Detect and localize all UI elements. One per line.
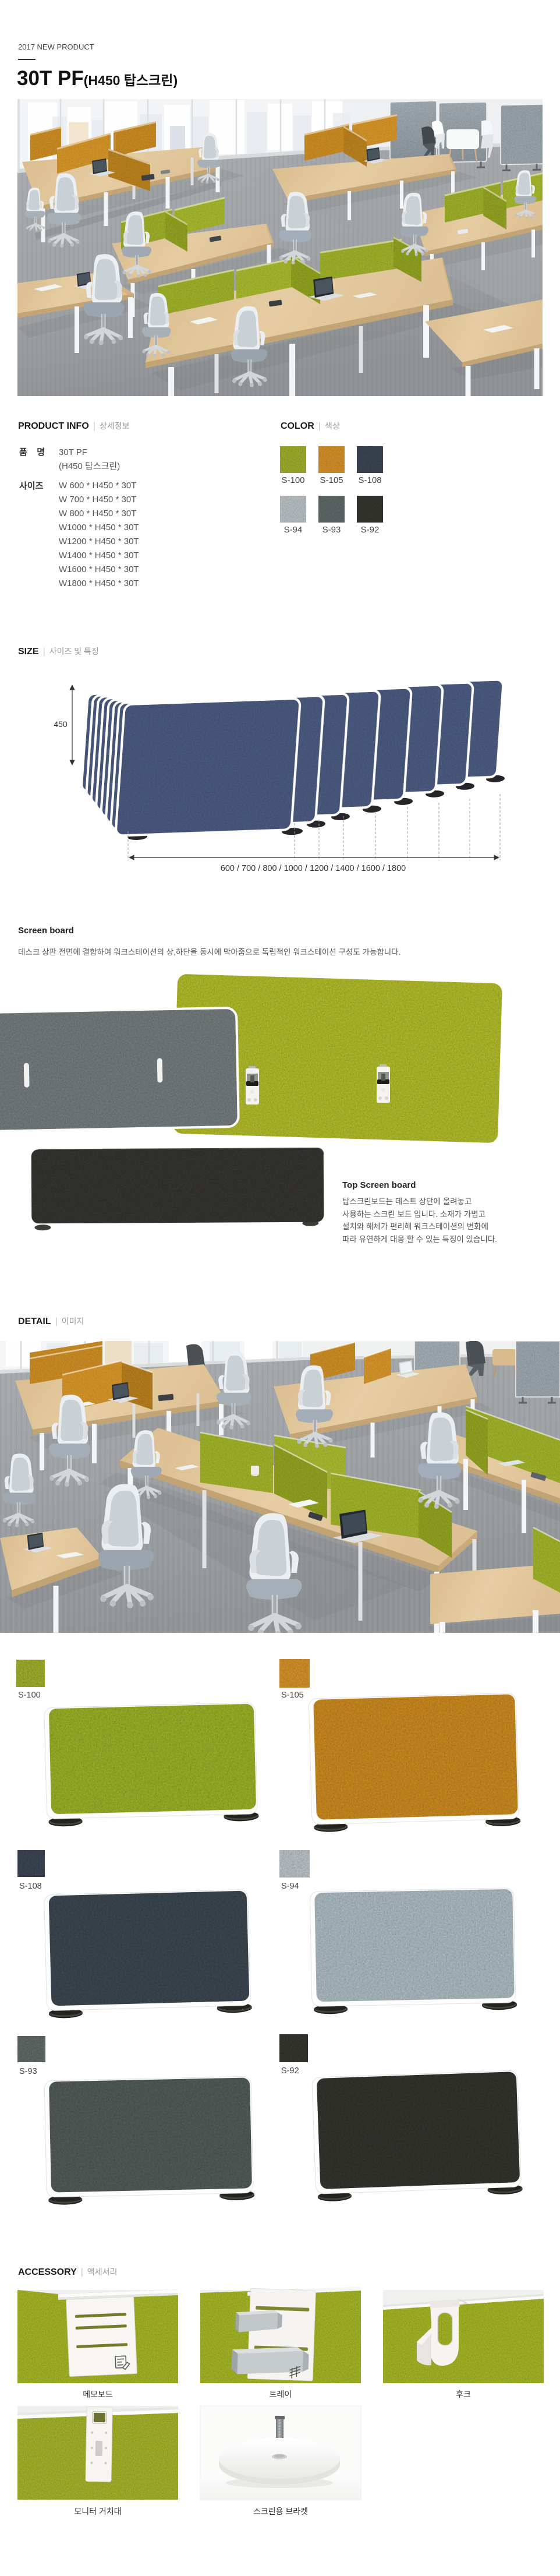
svg-text:600 / 700 / 800 / 1000 / 1200: 600 / 700 / 800 / 1000 / 1200 / 1400 / 1… <box>221 864 406 873</box>
svg-text:S-92: S-92 <box>281 2066 299 2076</box>
svg-text:S-93: S-93 <box>19 2067 37 2076</box>
svg-text:S-105: S-105 <box>281 1691 304 1700</box>
svg-text:450: 450 <box>54 719 68 729</box>
svg-text:S-100: S-100 <box>18 1691 41 1700</box>
svg-text:S-94: S-94 <box>281 1882 299 1891</box>
svg-text:S-108: S-108 <box>19 1882 42 1891</box>
